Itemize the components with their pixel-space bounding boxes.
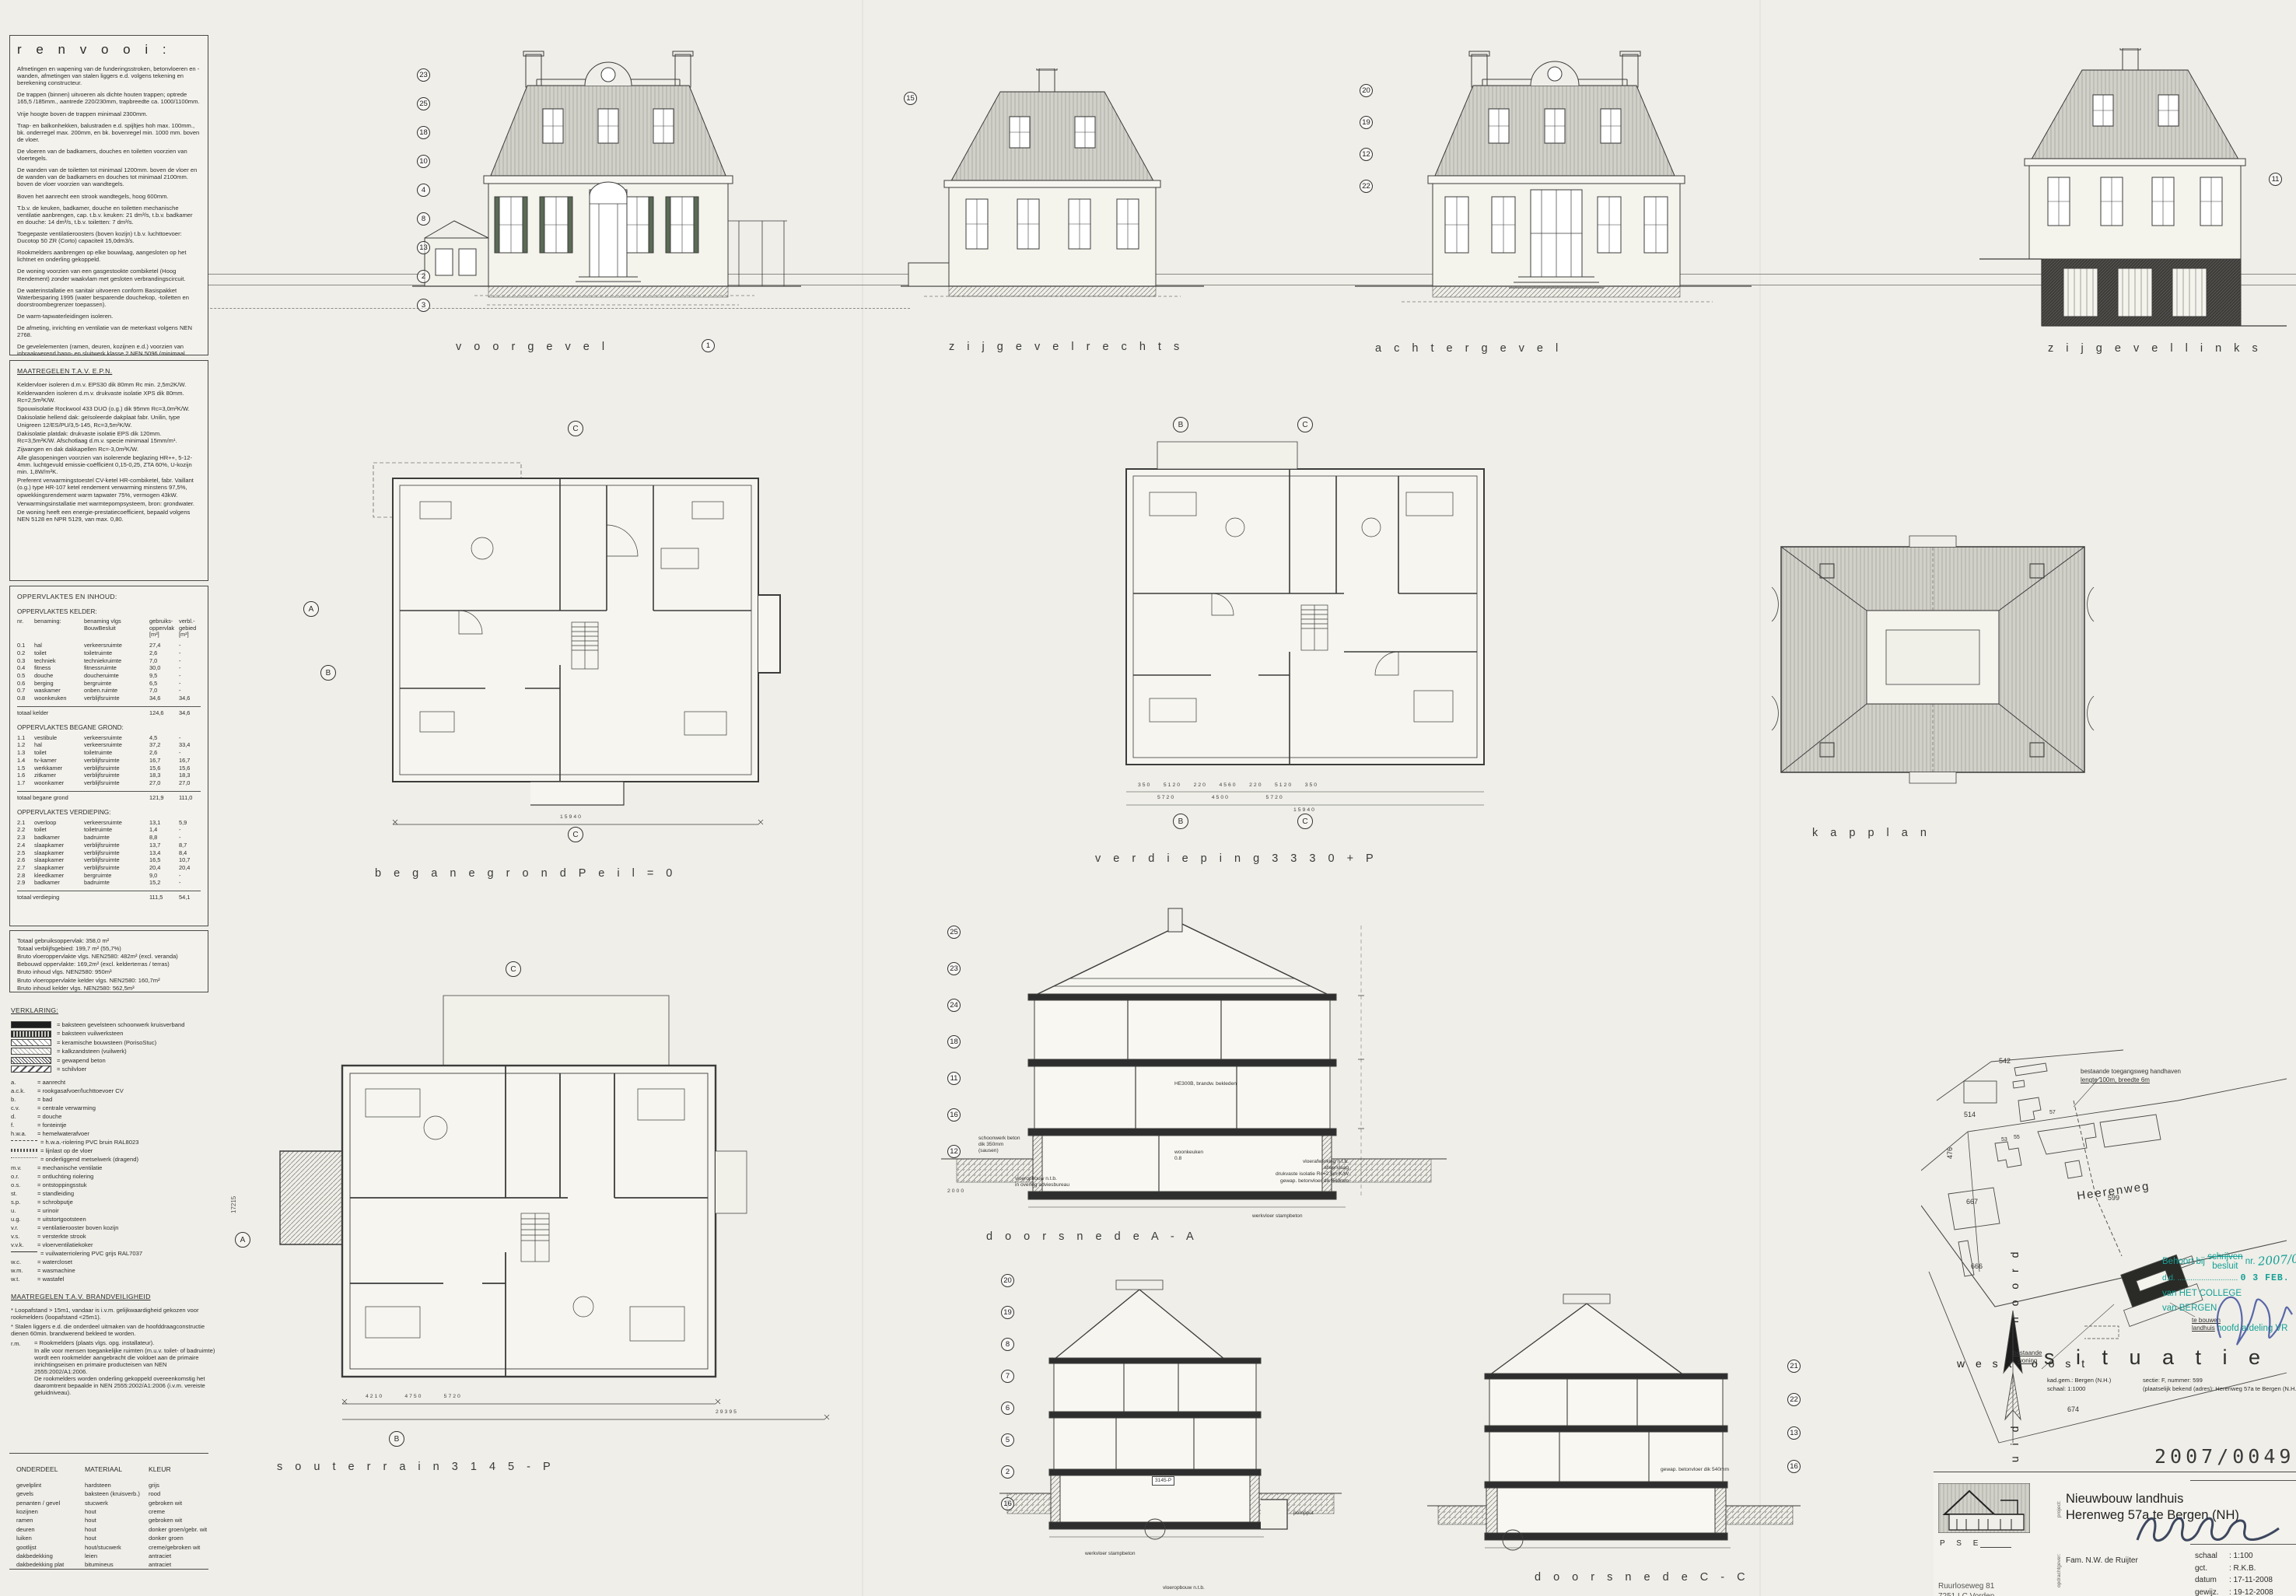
begane-grond-total: totaal begane grond121,9111,0	[17, 791, 201, 801]
table-row: 0.5douchedoucheruimte9,5-	[17, 672, 201, 680]
cc-annotation-floor: gewap. betonvloer dik 540mm	[1661, 1467, 1729, 1473]
verdieping-total: totaal verdieping111,554,1	[17, 891, 201, 901]
doorsnede-bb-drawing	[999, 1243, 1342, 1596]
hatch-swatch	[11, 1021, 51, 1028]
firm-logo	[1938, 1483, 2030, 1533]
legend-item: = schilvloer	[11, 1065, 212, 1073]
brandveiligheid-title: MAATREGELEN T.A.V. BRANDVEILIGHEID	[11, 1293, 218, 1300]
renvooi-paragraphs: Afmetingen en wapening van de funderings…	[17, 65, 201, 355]
table-row: 2.4slaapkamerverblijfsruimte13,78,7	[17, 842, 201, 849]
epn-paragraph: De woning heeft een energie-prestatiecoe…	[17, 509, 201, 523]
begane-grond-dim: 15940	[560, 814, 583, 820]
souterrain-dim-total: 29395	[716, 1409, 738, 1415]
kelder-title: OPPERVLAKTES KELDER:	[17, 608, 201, 615]
table-row: 0.7waskameronben.ruimte7,0-	[17, 688, 201, 695]
renvooi-paragraph: T.b.v. de keuken, badkamer, douche en to…	[17, 205, 201, 226]
achtergevel-drawing	[1355, 37, 1752, 364]
voorgevel-caption: v o o r g e v e l	[456, 341, 609, 353]
bb-annotation-bottom: werkvloer stampbeton	[1085, 1551, 1136, 1557]
totals-lines: Totaal gebruiksoppervlak: 358,0 m²Totaal…	[17, 937, 201, 992]
table-row: 2.2toilettoiletruimte1,4-	[17, 827, 201, 835]
renvooi-paragraph: Trap- en balkonhekken, balustraden e.d. …	[17, 122, 201, 143]
stamp-date: 0 3 FEB. 2009	[2240, 1273, 2296, 1283]
begane-grond-caption: b e g a n e g r o n d P e i l = 0	[375, 867, 677, 880]
legend-item: m.v. = mechanische ventilatie	[11, 1164, 212, 1172]
detail-marker: 20	[1001, 1274, 1014, 1287]
client-name: Fam. N.W. de Ruijter	[2066, 1556, 2138, 1565]
kelder-header: nr. benaming: benaming vlgs BouwBesluit …	[17, 618, 201, 639]
detail-marker: 2	[1001, 1465, 1014, 1479]
detail-marker: 23	[947, 962, 961, 975]
detail-marker: 16	[947, 1108, 961, 1122]
parcel-542: 542	[1999, 1057, 2011, 1065]
grid-marker-c-top: C	[1297, 417, 1313, 432]
detail-marker: 5	[1001, 1433, 1014, 1447]
achtergevel-caption: a c h t e r g e v e l	[1375, 342, 1563, 355]
totals-line: Bruto inhoud vlgs. NEN2580: 950m³	[17, 968, 201, 975]
parcel-514: 514	[1964, 1111, 1976, 1118]
client-label: opdrachtgever:	[2056, 1554, 2062, 1587]
paper-fold	[862, 0, 863, 1596]
detail-marker: 7	[1001, 1370, 1014, 1383]
verklaring-hatches: = baksteen gevelsteen schoonwerk kruisve…	[11, 1020, 212, 1073]
epn-paragraph: Spouwisolatie Rockwool 433 DUO (o.g.) di…	[17, 405, 201, 412]
detail-marker: 24	[947, 999, 961, 1012]
legend-item: = onderliggend metselwerk (dragend)	[11, 1155, 212, 1164]
project-title: Nieuwbouw landhuis Herenweg 57a te Berge…	[2066, 1491, 2239, 1523]
oppervlaktes-title: OPPERVLAKTES EN INHOUD:	[17, 593, 201, 600]
firm-address: Ruurloseweg 81 7251 LC Vorden	[1938, 1581, 1994, 1596]
parcel-667: 667	[1966, 1198, 1978, 1206]
legend-item: w.t. = wastafel	[11, 1275, 212, 1283]
grid-marker-b-top: B	[1173, 417, 1188, 432]
kapplan-caption: k a p p l a n	[1812, 827, 1931, 839]
annotation-driveway-2: lengte 100m, breedte 6m	[2081, 1076, 2150, 1083]
legend-item: = lijnlast op de vloer	[11, 1146, 212, 1155]
aa-annotation-right: vloerafwerking n.t.b. afwerklaag drukvas…	[1276, 1159, 1349, 1185]
table-row: ramenhoutgebroken wit	[16, 1516, 201, 1524]
renvooi-title: r e n v o o i :	[17, 42, 201, 58]
table-row: luikenhoutdonker groen	[16, 1534, 201, 1542]
grid-marker-b-bottom: B	[1173, 814, 1188, 829]
verdieping-dim-row2: 5720 4500 5720	[1157, 795, 1284, 800]
doorsnede-aa-caption: d o o r s n e d e A - A	[986, 1230, 1199, 1243]
grid-marker-c: C	[506, 961, 521, 977]
parcel-55: 55	[2014, 1135, 2020, 1140]
aa-annotation-bottom: werkvloer stampbeton	[1252, 1213, 1303, 1220]
table-row: 2.1overloopverkeersruimte13,15,9	[17, 819, 201, 827]
stamp-number-handwritten: 2007/0	[2257, 1249, 2296, 1272]
zijgevel-links-drawing	[1979, 48, 2287, 363]
table-row: 2.5slaapkamerverblijfsruimte13,48,4	[17, 849, 201, 857]
aa-annotation-room: woonkeuken 0.8	[1174, 1150, 1203, 1162]
legend-item: = baksteen gevelsteen schoonwerk kruisve…	[11, 1020, 212, 1029]
detail-marker: 8	[1001, 1338, 1014, 1351]
table-row: 0.2toilettoiletruimte2,6-	[17, 649, 201, 657]
table-row: 0.8woonkeukenverblijfsruimte34,634,6	[17, 695, 201, 702]
bb-annotation-level: 3145-P	[1152, 1476, 1174, 1486]
renvooi-paragraph: Vrije hoogte boven de trappen minimaal 2…	[17, 110, 201, 117]
zijgevel-links-markers: 11	[2269, 173, 2282, 186]
legend-item: u. = urinoir	[11, 1206, 212, 1215]
bb-annotation-floor: vloeropbouw n.t.b.	[1163, 1585, 1205, 1591]
doorsnede-bb-markers: 20198765216	[1001, 1274, 1014, 1510]
renvooi-paragraph: De vloeren van de badkamers, douches en …	[17, 148, 201, 162]
permit-number: 2007/00497	[2154, 1445, 2296, 1468]
grid-marker-b-left: B	[320, 665, 336, 681]
souterrain-dim-row: 4210 4750 5720	[366, 1394, 462, 1399]
detail-marker: 4	[417, 184, 430, 197]
begane-grond-drawing	[327, 432, 840, 867]
situatie-drawing	[1921, 1007, 2296, 1462]
hatch-swatch	[11, 1031, 51, 1038]
title-block: P S E Ruurloseweg 81 7251 LC Vorden proj…	[1934, 1472, 2296, 1596]
situatie-meta-right: sectie: F, nummer: 599 (plaatselijk beke…	[2143, 1376, 2296, 1394]
kelder-total: totaal kelder124,634,6	[17, 706, 201, 716]
architectural-drawing-sheet: r e n v o o i : Afmetingen en wapening v…	[0, 0, 2296, 1596]
legend-item: a. = aanrecht	[11, 1078, 212, 1087]
brand-item: * Stalen liggers e.d. die onderdeel uitm…	[11, 1323, 218, 1337]
situatie-meta-left: kad.gem.: Bergen (N.H.) schaal: 1:1000	[2047, 1376, 2111, 1394]
detail-marker: 22	[1360, 180, 1373, 193]
detail-marker: 12	[947, 1145, 961, 1158]
epn-paragraph: Zijwangen en dak dakkapellen Rc=-3,0m²K/…	[17, 446, 201, 453]
zijgevel-rechts-caption: z i j g e v e l r e c h t s	[949, 341, 1184, 353]
line-symbol	[11, 1149, 37, 1152]
grid-marker-b: B	[389, 1431, 404, 1447]
elevation-zijgevel-links: 11 z i j g e v e l l i n k s	[1979, 48, 2287, 363]
aa-annotation-left1: schoonwerk beton dik 350mm (sausen)	[978, 1136, 1020, 1155]
renvooi-paragraph: Boven het aanrecht een strook wandtegels…	[17, 193, 201, 200]
detail-marker: 18	[417, 126, 430, 139]
firm-name: P S E	[1940, 1539, 1983, 1548]
verdieping-dim-row1: 350 5120 220 4560 220 5120 350	[1138, 782, 1318, 788]
hatch-swatch	[11, 1066, 51, 1073]
parcel-674: 674	[2067, 1405, 2079, 1413]
epn-paragraph: Kelderwanden isoleren d.m.v. drukvaste i…	[17, 390, 201, 404]
voorgevel-drawing	[412, 37, 801, 364]
parcel-476: 476	[1946, 1147, 1954, 1159]
plan-souterrain: A C B 4210 4750 5720 29395 s o u t e r r…	[249, 972, 840, 1486]
materialen-rows: gevelplinthardsteengrijs gevelsbaksteen …	[16, 1481, 201, 1570]
verdieping-dim-total: 15940	[1293, 807, 1316, 813]
voorgevel-markers: 23251810481323	[417, 68, 430, 312]
materialen-headers: ONDERDEEL MATERIAAL KLEUR	[16, 1460, 201, 1481]
begane-grond-title: OPPERVLAKTES BEGANE GROND:	[17, 724, 201, 731]
aa-annotation-beam: HE300B, brandw. bekleden	[1174, 1081, 1237, 1087]
table-row: 1.5werkkamerverblijfsruimte15,615,6	[17, 765, 201, 772]
table-row: gevelsbaksteen (kruisverb.)rood	[16, 1489, 201, 1498]
stamp-sign-caption: hoofd afdeling VR	[2217, 1321, 2296, 1337]
renvooi-box: r e n v o o i : Afmetingen en wapening v…	[9, 35, 208, 355]
table-row: 1.1vestibuleverkeersruimte4,5-	[17, 734, 201, 742]
situatie-title: s i t u a t i e	[2044, 1346, 2268, 1370]
aa-annotation-left2: vloeropbouw n.t.b. in overleg adviesbure…	[1015, 1176, 1069, 1188]
renvooi-paragraph: De afmeting, inrichting en ventilatie va…	[17, 324, 201, 338]
table-row: 1.4tv-kamerverblijfsruimte16,716,7	[17, 757, 201, 765]
totals-box: Totaal gebruiksoppervlak: 358,0 m²Totaal…	[9, 930, 208, 992]
verdieping-title: OPPERVLAKTES VERDIEPING:	[17, 809, 201, 816]
table-row: gevelplinthardsteengrijs	[16, 1481, 201, 1489]
renvooi-paragraph: Afmetingen en wapening van de funderings…	[17, 65, 201, 86]
verdieping-caption: v e r d i e p i n g 3 3 3 0 + P	[1095, 852, 1378, 865]
detail-marker: 19	[1360, 116, 1373, 129]
detail-marker: 13	[417, 241, 430, 254]
detail-marker: 13	[1787, 1426, 1801, 1440]
detail-marker: 6	[1001, 1402, 1014, 1415]
legend-item: = keramische bouwsteen (PorisoStuc)	[11, 1038, 212, 1047]
project-label: project:	[2056, 1501, 2062, 1517]
table-row: 1.2halverkeersruimte37,233,4	[17, 742, 201, 750]
hatch-swatch	[11, 1048, 51, 1055]
elevation-zijgevel-rechts: 15 z i j g e v e l r e c h t s	[901, 68, 1204, 364]
epn-paragraphs: Keldervloer isoleren d.m.v. EPS30 dik 80…	[17, 381, 201, 523]
zijgevel-links-caption: z i j g e v e l l i n k s	[2048, 342, 2263, 355]
detail-marker: 20	[1360, 84, 1373, 97]
legend-item: = baksteen vuilwerksteen	[11, 1029, 212, 1038]
table-row: 0.3techniektechniekruimte7,0-	[17, 657, 201, 665]
compass-west: w e s t	[1957, 1357, 2015, 1370]
legend-item: = kalkzandsteen (vuilwerk)	[11, 1047, 212, 1055]
annotation-bestaande-woning: bestaande woning	[2013, 1349, 2042, 1365]
table-row: kozijnenhoutcreme	[16, 1507, 201, 1516]
renvooi-paragraph: De gevelelementen (ramen, deuren, kozijn…	[17, 343, 201, 355]
doorsnede-cc-markers: 21221316	[1787, 1360, 1801, 1473]
totals-line: Bruto vloeroppervlakte vlgs. NEN2580: 48…	[17, 953, 201, 960]
totals-line: Bruto inhoud kelder vlgs. NEN2580: 562,5…	[17, 985, 201, 992]
detail-marker: 25	[417, 97, 430, 110]
renvooi-paragraph: De waterinstallatie en sanitair uitvoere…	[17, 287, 201, 308]
detail-marker: 10	[417, 155, 430, 168]
zijgevel-rechts-drawing	[901, 68, 1204, 364]
voorgevel-caption-marker: 1	[702, 339, 715, 352]
legend-item: v.v.k. = vloerventilatiekoker	[11, 1241, 212, 1249]
elevation-voorgevel: 23251810481323 v o o r g e v e l 1	[412, 37, 801, 364]
renvooi-paragraph: Toegepaste ventilatieroosters (boven koz…	[17, 230, 201, 244]
line-symbol	[11, 1140, 37, 1146]
table-row: penanten / gevelstucwerkgebroken wit	[16, 1499, 201, 1507]
aa-dim-left: 2000	[947, 1188, 965, 1194]
legend-item: h.w.a. = hemelwaterafvoer	[11, 1129, 212, 1138]
section-doorsnede-aa: 25232418111612 schoonwerk beton dik 350m…	[941, 902, 1447, 1252]
renvooi-paragraph: De trappen (binnen) uitvoeren als dichte…	[17, 91, 201, 105]
grid-marker-a: A	[235, 1232, 250, 1248]
achtergevel-markers: 20191222	[1360, 84, 1373, 193]
totals-line: Totaal verblijfsgebied: 199,7 m² (55,7%)	[17, 945, 201, 952]
verklaring-title: VERKLARING:	[11, 1006, 212, 1014]
line-symbol	[11, 1251, 37, 1258]
detail-marker: 23	[417, 68, 430, 82]
rm-legend: r.m. = Rookmelders (plaats vlgs. opg. in…	[11, 1339, 218, 1396]
table-row: 0.1halverkeersruimte27,4-	[17, 642, 201, 650]
table-row: gootlijsthout/stucwerkcreme/gebroken wit	[16, 1543, 201, 1552]
legend-item: f. = fonteintje	[11, 1121, 212, 1129]
renvooi-paragraph: De wanden van de toiletten tot minimaal …	[17, 166, 201, 187]
detail-marker: 8	[417, 212, 430, 226]
legend-item: d. = douche	[11, 1112, 212, 1121]
table-row: 1.3toilettoiletruimte2,6-	[17, 750, 201, 758]
renvooi-paragraph: De warm-tapwaterleidingen isoleren.	[17, 313, 201, 320]
table-row: 2.8kleedkamerbergruimte9,0-	[17, 872, 201, 880]
compass-zuid: z u i d	[2008, 1423, 2021, 1479]
epn-paragraph: Preferent verwarmingstoestel CV-ketel HR…	[17, 477, 201, 498]
totals-line: Bruto vloeroppervlakte kelder vlgs. NEN2…	[17, 977, 201, 984]
epn-paragraph: Dakisolatie hellend dak: geïsoleerde dak…	[17, 414, 201, 428]
epn-paragraph: Verwarmingsinstallatie met warmtepompsys…	[17, 500, 201, 507]
legend-item: = h.w.a.-riolering PVC bruin RAL8023	[11, 1138, 212, 1146]
detail-marker: 2	[417, 270, 430, 283]
detail-marker: 16	[1787, 1460, 1801, 1473]
detail-marker: 22	[1787, 1393, 1801, 1406]
legend-item: = vuilwaterriolering PVC grijs RAL7037	[11, 1249, 212, 1258]
verklaring-abbreviations: a. = aanrecht a.c.k. = rookgasafvoer/luc…	[11, 1078, 212, 1283]
bb-annotation-pompput: pompput	[1293, 1510, 1314, 1517]
legend-item: s.p. = schrobputje	[11, 1198, 212, 1206]
brandveiligheid-items: * Loopafstand > 15m1, vandaar is i.v.m. …	[11, 1307, 218, 1337]
oppervlaktes-box: OPPERVLAKTES EN INHOUD: OPPERVLAKTES KEL…	[9, 586, 208, 926]
begane-grond-rows: 1.1vestibuleverkeersruimte4,5- 1.2halver…	[17, 734, 201, 787]
detail-marker: 3	[417, 299, 430, 312]
hatch-swatch	[11, 1039, 51, 1046]
verklaring-block: VERKLARING: = baksteen gevelsteen schoon…	[11, 1006, 212, 1283]
legend-item: o.s. = ontstoppingsstuk	[11, 1181, 212, 1189]
plan-verdieping: B C B C 350 5120 220 4560 220 5120 350 5…	[1064, 426, 1562, 885]
epn-title: MAATREGELEN T.A.V. E.P.N.	[17, 367, 201, 375]
detail-marker: 16	[1001, 1497, 1014, 1510]
doorsnede-cc-drawing	[1427, 1266, 1801, 1566]
kelder-rows: 0.1halverkeersruimte27,4- 0.2toilettoile…	[17, 642, 201, 703]
table-row: deurenhoutdonker groen/gebr. wit	[16, 1525, 201, 1534]
table-row: dakbedekkingleienantraciet	[16, 1552, 201, 1560]
epn-box: MAATREGELEN T.A.V. E.P.N. Keldervloer is…	[9, 360, 208, 581]
souterrain-drawing	[249, 972, 840, 1447]
renvooi-paragraph: Rookmelders aanbrengen op elke bouwlaag,…	[17, 249, 201, 263]
legend-item: w.c. = watercloset	[11, 1258, 212, 1266]
line-symbol	[11, 1157, 37, 1164]
totals-line: Bebouwd oppervlakte: 169,2m² (excl. keld…	[17, 961, 201, 968]
detail-marker: 19	[1001, 1306, 1014, 1319]
verdieping-rows: 2.1overloopverkeersruimte13,15,9 2.2toil…	[17, 819, 201, 887]
grid-marker-c-bottom: C	[1297, 814, 1313, 829]
epn-paragraph: Dakisolatie platdak: drukvaste isolatie …	[17, 430, 201, 444]
rm-key: r.m.	[11, 1339, 34, 1348]
epn-paragraph: Keldervloer isoleren d.m.v. EPS30 dik 80…	[17, 381, 201, 388]
titleblock-meta: schaal: 1:100 gct.: R.K.B. datum: 17-11-…	[2195, 1550, 2296, 1596]
brand-item: * Loopafstand > 15m1, vandaar is i.v.m. …	[11, 1307, 218, 1321]
hatch-swatch	[11, 1057, 51, 1064]
plan-begane-grond: C C B A 15940 b e g a n e g r o n d P e …	[327, 432, 840, 898]
table-row: 2.9badkamerbadruimte15,2-	[17, 880, 201, 887]
annotation-driveway-1: bestaande toegangsweg handhaven	[2081, 1068, 2181, 1075]
table-row: 0.6bergingbergruimte6,5-	[17, 680, 201, 688]
detail-marker: 15	[904, 92, 917, 105]
table-row: dakbedekking platbitumineusantraciet	[16, 1560, 201, 1569]
table-row: 2.7slaapkamerverblijfsruimte20,420,4	[17, 864, 201, 872]
parcel-53: 53	[2001, 1137, 2007, 1143]
table-row: 2.3badkamerbadruimte8,8-	[17, 835, 201, 842]
doorsnede-cc-caption: d o o r s n e d e C - C	[1535, 1571, 1750, 1584]
materialen-table: ONDERDEEL MATERIAAL KLEUR gevelplinthard…	[9, 1453, 208, 1570]
stamp-besluit: besluit	[2207, 1262, 2242, 1271]
brandveiligheid-block: MAATREGELEN T.A.V. BRANDVEILIGHEID * Loo…	[11, 1293, 218, 1396]
zijgevel-rechts-markers: 15	[904, 92, 917, 105]
parcel-57: 57	[2049, 1110, 2056, 1115]
detail-marker: 25	[947, 926, 961, 939]
stamp-van-college: van HET COLLEGE	[2162, 1286, 2296, 1302]
stamp-van-bergen: van BERGEN	[2162, 1301, 2296, 1317]
legend-item: v.r. = ventilatierooster boven kozijn	[11, 1223, 212, 1232]
grid-marker-a-left: A	[303, 601, 319, 617]
table-row: 1.6zitkamerverblijfsruimte18,318,3	[17, 772, 201, 780]
table-row: 0.4fitnessfitnessruimte30,0-	[17, 665, 201, 673]
legend-item: st. = standleiding	[11, 1189, 212, 1198]
legend-item: u.g. = uitstortgootsteen	[11, 1215, 212, 1223]
table-row: 2.6slaapkamerverblijfsruimte16,510,7	[17, 857, 201, 865]
renvooi-paragraph: De woning voorzien van een gasgestookte …	[17, 268, 201, 282]
rm-note: = Rookmelders (plaats vlgs. opg. install…	[34, 1339, 218, 1396]
totals-line: Totaal gebruiksoppervlak: 358,0 m²	[17, 937, 201, 944]
plan-kapplan: k a p p l a n	[1750, 517, 2116, 852]
grid-marker-c-bottom: C	[568, 827, 583, 842]
legend-item: a.c.k. = rookgasafvoer/luchttoevoer CV	[11, 1087, 212, 1095]
table-row: 1.7woonkamerverblijfsruimte27,027,0	[17, 779, 201, 787]
detail-marker: 11	[947, 1072, 961, 1085]
epn-paragraph: Alle glasopeningen voorzien van isoleren…	[17, 454, 201, 475]
grid-marker-c-top: C	[568, 421, 583, 436]
kapplan-drawing	[1750, 517, 2116, 817]
section-doorsnede-bb: 20198765216 3145-P pompput werkvloer sta…	[999, 1243, 1342, 1596]
detail-marker: 21	[1787, 1360, 1801, 1373]
detail-marker: 18	[947, 1035, 961, 1048]
section-doorsnede-cc: 21221316 gewap. betonvloer dik 540mm d o…	[1427, 1266, 1801, 1593]
doorsnede-aa-markers: 25232418111612	[947, 926, 961, 1158]
legend-item: c.v. = centrale verwarming	[11, 1104, 212, 1112]
elevation-achtergevel: 20191222 a c h t e r g e v e l	[1355, 37, 1752, 364]
legend-item: o.r. = ontluchting riolering	[11, 1172, 212, 1181]
municipal-stamp: Behoort bij schrijven besluit nr. 2007/0…	[2162, 1251, 2296, 1336]
legend-item: b. = bad	[11, 1095, 212, 1104]
sheet-number-vertical: 17215	[230, 1196, 237, 1213]
legend-item: w.m. = wasmachine	[11, 1266, 212, 1275]
detail-marker: 12	[1360, 148, 1373, 161]
stamp-schrijven: schrijven	[2207, 1252, 2242, 1262]
situatie-map: 667 666 476 542 514 57 53 55 599 674 Hee…	[1921, 1007, 2296, 1462]
detail-marker: 11	[2269, 173, 2282, 186]
parcel-666: 666	[1971, 1262, 1983, 1270]
legend-item: v.s. = versterkte strook	[11, 1232, 212, 1241]
compass-noord: n o o r d	[2008, 1248, 2021, 1323]
legend-item: = gewapend beton	[11, 1056, 212, 1065]
souterrain-caption: s o u t e r r a i n 3 1 4 5 - P	[277, 1461, 555, 1473]
